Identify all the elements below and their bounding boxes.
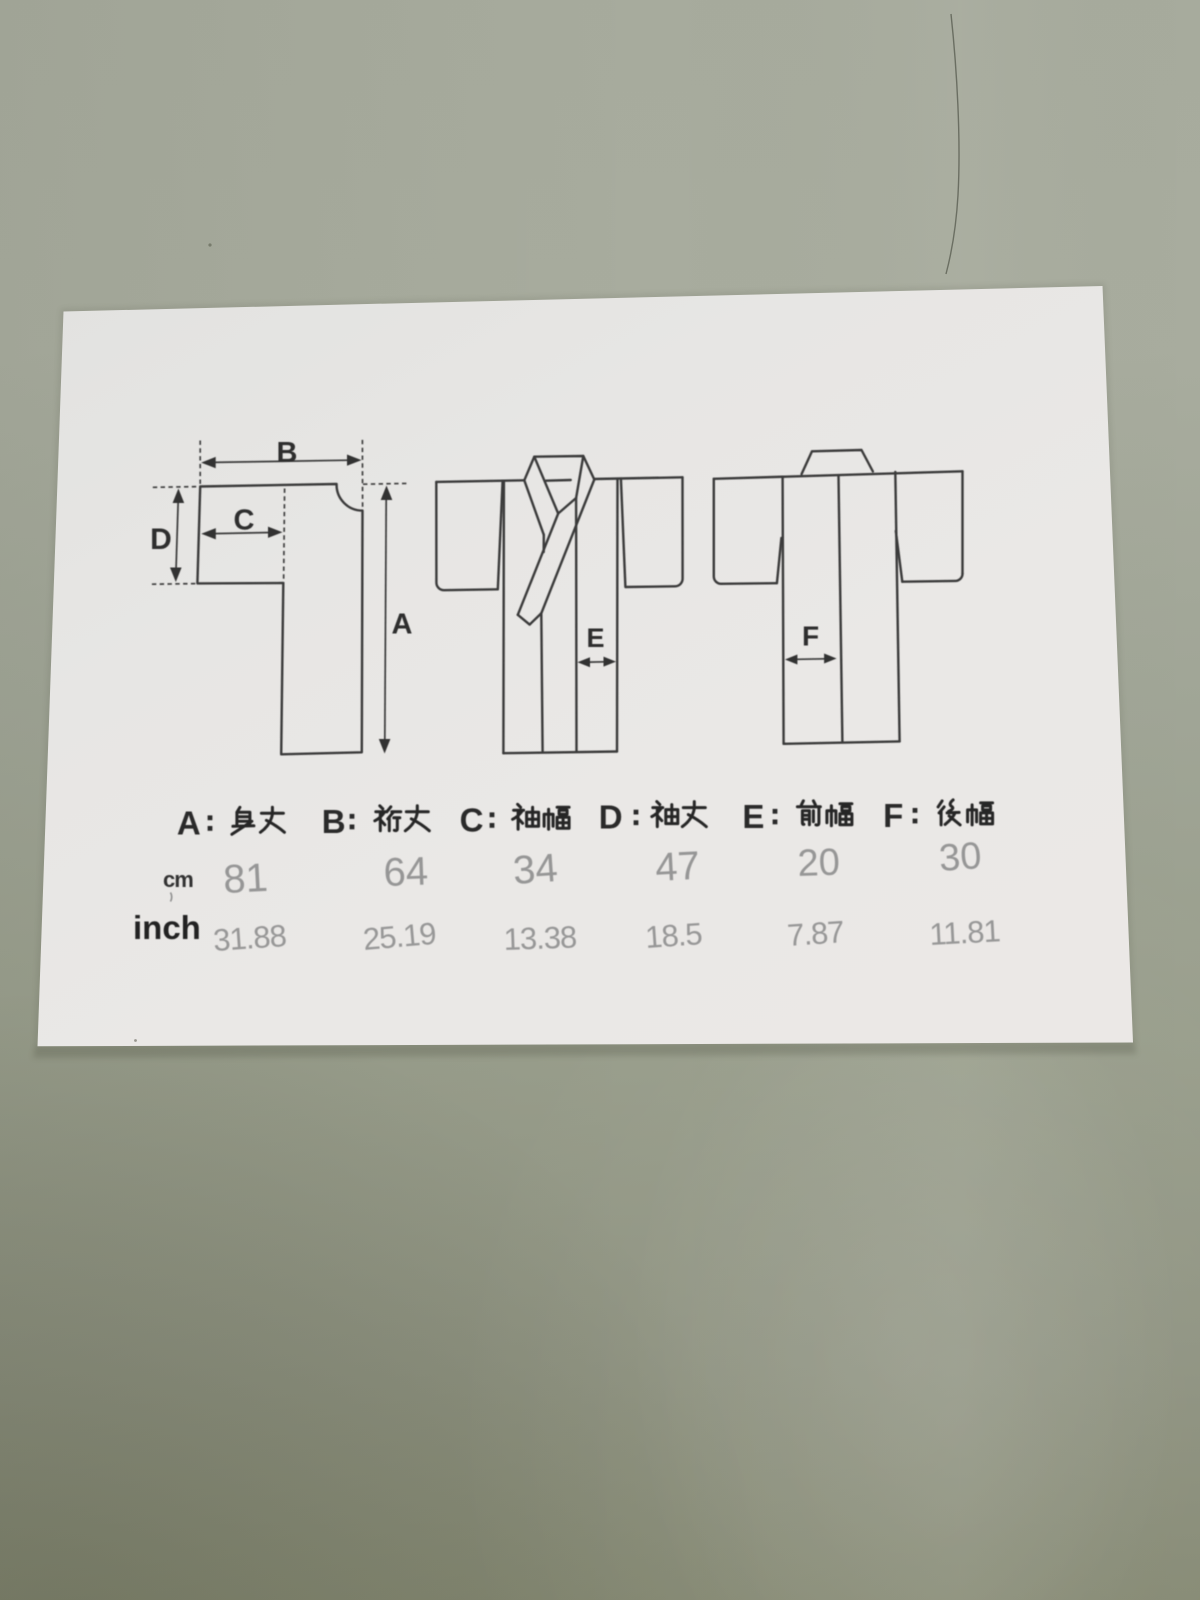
svg-text:C: C [460, 801, 484, 838]
svg-text:D: D [599, 799, 623, 836]
svg-text:F: F [802, 621, 819, 652]
svg-text:18.5: 18.5 [644, 916, 703, 955]
svg-text:F: F [883, 797, 903, 834]
svg-text:E: E [586, 623, 604, 653]
svg-text:A: A [392, 609, 413, 641]
svg-text:47: 47 [654, 844, 701, 890]
svg-text:64: 64 [383, 849, 429, 895]
svg-text:B: B [322, 803, 346, 840]
svg-text:cm: cm [163, 867, 193, 892]
svg-text:31.88: 31.88 [212, 918, 287, 958]
svg-text:7.87: 7.87 [786, 914, 845, 953]
svg-text:inch: inch [133, 909, 201, 946]
svg-text:20: 20 [797, 842, 841, 885]
svg-text:30: 30 [938, 835, 983, 880]
svg-text:11.81: 11.81 [929, 913, 1001, 952]
svg-text:34: 34 [512, 846, 559, 893]
svg-text:A: A [177, 804, 201, 841]
svg-text:E: E [742, 798, 764, 835]
svg-text:13.38: 13.38 [503, 919, 577, 957]
svg-text:25.19: 25.19 [362, 916, 437, 957]
svg-text:B: B [277, 437, 298, 469]
svg-text:81: 81 [222, 856, 269, 902]
svg-text:C: C [234, 505, 255, 537]
svg-text:D: D [150, 523, 172, 556]
